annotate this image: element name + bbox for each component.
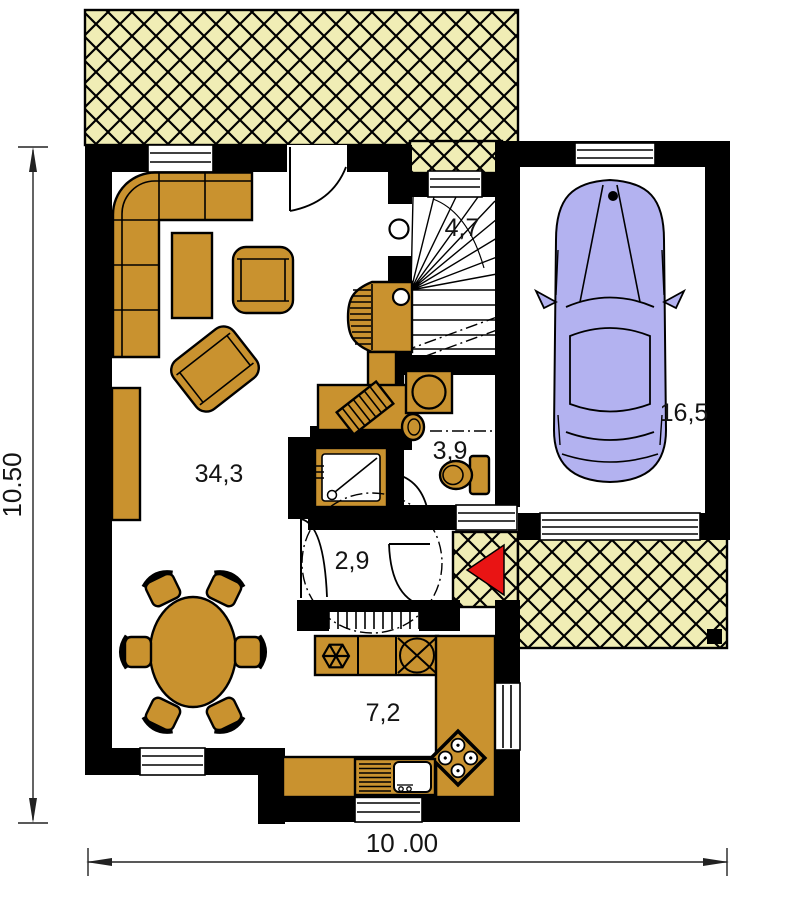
shelf-cabinet [112,388,140,520]
stair-window [428,171,482,197]
door-living-hall [301,519,327,598]
area-label-hall: 2,9 [335,547,370,575]
dimension-bottom: 10 .00 [86,828,729,876]
kitchen-window-bottom [355,795,422,822]
coffee-table [172,233,212,318]
washbasin [402,414,424,440]
dining-chair [122,636,152,668]
car-mirror-left [536,291,556,308]
shower [312,448,387,507]
armchair-rotated [166,321,264,417]
entry-door [456,505,517,530]
radiator [329,610,419,631]
area-label-living: 34,3 [195,460,244,488]
kitchen-counter-top [315,636,438,675]
car-mirror-right [664,291,684,308]
flue-connection [393,289,409,305]
area-label-stairs: 4,7 [445,214,480,242]
floor-plan: 34,3 7,2 2,9 3,9 4,7 16,5 10.50 10 .00 [0,0,811,900]
height-dimension-label: 10.50 [0,452,27,517]
dining-window [140,748,205,775]
kitchen-window-right [495,683,520,750]
porch-corner-marker [707,629,722,644]
armchair [233,247,293,313]
dining-chair [235,636,265,668]
stove-bench [318,382,412,435]
dimension-left: 10.50 [0,147,48,823]
car [536,180,684,482]
garage-window [575,143,655,165]
car-hood-ornament [608,191,618,201]
area-label-garage: 16,5 [660,399,709,427]
width-dimension-label: 10 .00 [366,828,438,858]
door-hall-entry [389,544,430,607]
area-label-kitchen: 7,2 [366,699,401,727]
living-window-top [148,145,213,172]
newel-post [390,220,409,239]
kitchen-sink-icon [355,759,435,795]
entry-porch [453,532,727,648]
dining-table [150,597,236,707]
garage-door [540,513,700,540]
terrace-door [287,145,347,211]
washing-machine [406,371,452,413]
area-label-bathroom: 3,9 [433,437,468,465]
